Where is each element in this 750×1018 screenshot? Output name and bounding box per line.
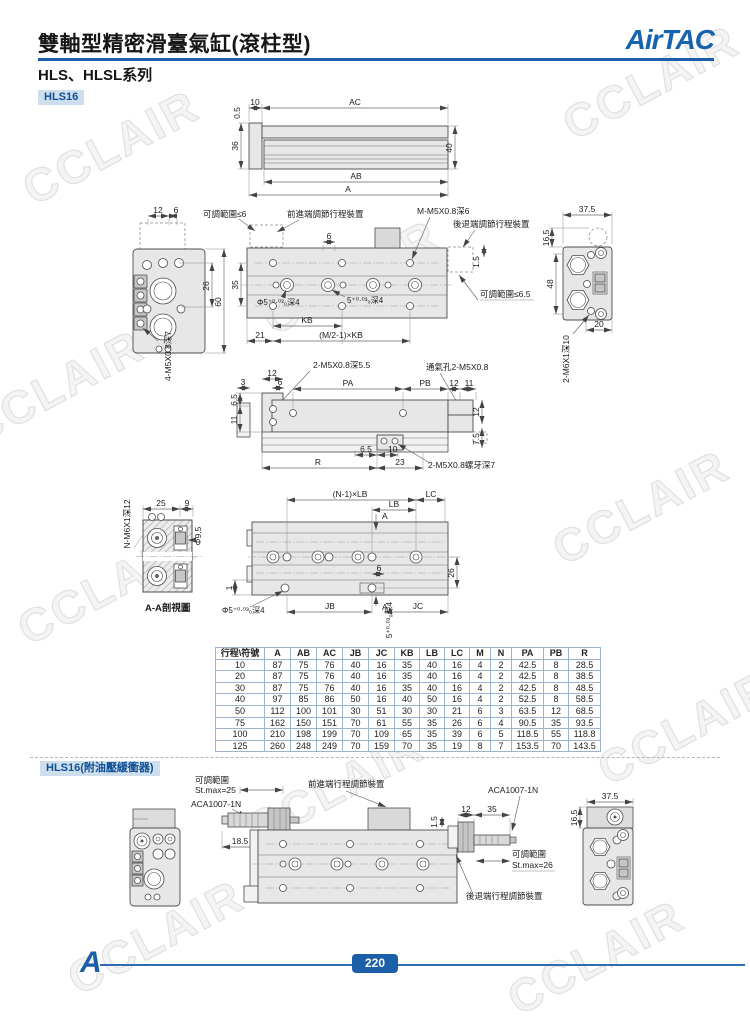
- air-port-callout: 通氣孔2-M5X0.8: [426, 362, 489, 372]
- sensor-block: [368, 808, 410, 830]
- cell: 58.5: [569, 694, 601, 706]
- cell: 87: [265, 671, 291, 683]
- cushion-nut-right: [458, 822, 474, 852]
- dim-3: 3: [241, 377, 246, 387]
- cell: 50: [420, 694, 445, 706]
- title-underline: [38, 58, 714, 61]
- cell: 4: [491, 717, 512, 729]
- cell: 76: [317, 671, 343, 683]
- ghost-adjuster-circle: [589, 228, 607, 246]
- ghost-forward-adjuster: [250, 225, 283, 247]
- dim-12: 12: [267, 368, 277, 378]
- dim-1: 1: [224, 585, 234, 590]
- dim-pa: PA: [343, 378, 354, 388]
- cell: 198: [291, 729, 317, 741]
- cell: 16: [369, 694, 395, 706]
- dim-25: 25: [156, 498, 166, 508]
- cell: 90.5: [512, 717, 544, 729]
- section-divider: [30, 757, 720, 758]
- cell: 97: [265, 694, 291, 706]
- label-aca1007-right: ACA1007-1N: [488, 785, 538, 795]
- cell: 16: [445, 682, 470, 694]
- col-header-11: PA: [512, 648, 544, 660]
- drawing-bottom-side-view: 2-M5X0.8深5.5 通氣孔2-M5X0.8 3 12 6 PA PB 12…: [228, 358, 523, 483]
- section-marker-a-top: A: [382, 511, 388, 521]
- table-row: 1252602482497015970351987153.570143.5: [216, 740, 601, 752]
- dim-6-5-left: 6.5: [229, 394, 239, 406]
- cell: 10: [216, 659, 265, 671]
- dim-n1lb: (N-1)×LB: [333, 489, 368, 499]
- drawing-plan-view: 可調範圍≤6 前進端調節行程裝置 M-M5X0.8深6 後退端調節行程裝置 1.…: [195, 205, 539, 355]
- cell: 75: [291, 659, 317, 671]
- table-row: 7516215015170615535266490.53593.5: [216, 717, 601, 729]
- model-badge-hls16: HLS16: [38, 90, 84, 105]
- cell: 2: [491, 682, 512, 694]
- cell: 151: [317, 717, 343, 729]
- col-header-0: 行程\符號: [216, 648, 265, 660]
- cell: 42.5: [512, 659, 544, 671]
- cell: 4: [470, 659, 491, 671]
- dim-16-5: 16.5: [569, 809, 579, 826]
- cell: 260: [265, 740, 291, 752]
- cell: 8: [470, 740, 491, 752]
- cell: 87: [265, 682, 291, 694]
- col-header-6: KB: [395, 648, 420, 660]
- label-aca1007-left: ACA1007-1N: [191, 799, 241, 809]
- col-header-10: N: [491, 648, 512, 660]
- dim-6: 6: [278, 377, 283, 387]
- table-row: 3087757640163540164242.5848.5: [216, 682, 601, 694]
- airtac-logo: AirTAC: [626, 24, 714, 56]
- cell: 16: [445, 671, 470, 683]
- cell: 93.5: [569, 717, 601, 729]
- dim-40: 40: [444, 143, 454, 153]
- cell: 30: [395, 705, 420, 717]
- dim-m2-1-kb: (M/2-1)×KB: [319, 330, 363, 340]
- label-forward-stroke-adjuster: 前進端行程調節裝置: [308, 779, 385, 789]
- cell: 19: [445, 740, 470, 752]
- cell: 76: [317, 659, 343, 671]
- cell: 75: [291, 682, 317, 694]
- cell: 118.5: [512, 729, 544, 741]
- cell: 16: [369, 671, 395, 683]
- table-row: 4097858650164050164252.5858.5: [216, 694, 601, 706]
- ghost-rear-adjuster: [448, 247, 473, 272]
- cell: 150: [291, 717, 317, 729]
- cell: 48.5: [569, 682, 601, 694]
- cell: 8: [544, 659, 569, 671]
- col-header-12: PB: [544, 648, 569, 660]
- cell: 153.5: [512, 740, 544, 752]
- dim-20: 20: [594, 319, 604, 329]
- cell: 35: [395, 671, 420, 683]
- cell: 65: [395, 729, 420, 741]
- cell: 16: [445, 659, 470, 671]
- label-range-26b: St.max=26: [512, 860, 553, 870]
- cell: 76: [317, 682, 343, 694]
- cell: 100: [216, 729, 265, 741]
- label-range-26a: 可調範圍: [512, 849, 546, 859]
- cell: 70: [343, 740, 369, 752]
- col-header-1: A: [265, 648, 291, 660]
- catalog-page: 雙軸型精密滑臺氣缸(滾柱型) AirTAC HLS、HLSL系列 HLS16 1…: [0, 0, 750, 1018]
- label-rear-stroke-adjuster: 後退端調節行程裝置: [453, 219, 530, 229]
- thread-callout-top: 2-M5X0.8深5.5: [313, 360, 370, 370]
- dim-6: 6: [174, 205, 179, 215]
- cell: 40: [420, 659, 445, 671]
- col-header-5: JC: [369, 648, 395, 660]
- cell: 50: [216, 705, 265, 717]
- table-header-row: 行程\符號AABACJBJCKBLBLCMNPAPBR: [216, 648, 601, 660]
- footer-rule: [100, 964, 745, 966]
- cell: 4: [470, 682, 491, 694]
- dim-35: 35: [230, 280, 240, 290]
- dim-6-5-bottom: 6.5: [360, 444, 372, 454]
- cell: 40: [343, 671, 369, 683]
- cell: 40: [343, 682, 369, 694]
- cell: 86: [317, 694, 343, 706]
- col-header-3: AC: [317, 648, 343, 660]
- cell: 20: [216, 671, 265, 683]
- drawing-side-elevation: 10 AC 0.5 36 40 AB A: [230, 96, 500, 204]
- watermark: CCLAIR: [544, 438, 739, 576]
- thread-callout: 4-M5X0.8深7: [163, 331, 173, 381]
- cell: 35: [544, 717, 569, 729]
- dim-10: 10: [250, 97, 260, 107]
- dim-37-5: 37.5: [579, 204, 596, 214]
- page-title: 雙軸型精密滑臺氣缸(滾柱型): [38, 28, 311, 58]
- cell: 8: [544, 671, 569, 683]
- cell: 6: [470, 705, 491, 717]
- table-row: 2087757640163540164242.5838.5: [216, 671, 601, 683]
- cell: 87: [265, 659, 291, 671]
- col-header-2: AB: [291, 648, 317, 660]
- dim-pb: PB: [419, 378, 431, 388]
- footer-logo-mark: A: [80, 946, 102, 980]
- counterbore-callout-1: Φ5⁺⁰·⁰³₀深4: [222, 606, 265, 615]
- cell: 39: [445, 729, 470, 741]
- cell: 210: [265, 729, 291, 741]
- cell: 35: [420, 740, 445, 752]
- cell: 30: [420, 705, 445, 717]
- dim-1-5: 1.5: [471, 256, 481, 268]
- dim-12: 12: [461, 804, 471, 814]
- dim-1-5: 1.5: [429, 816, 439, 828]
- dim-16-5: 16.5: [541, 229, 551, 246]
- cell: 118.8: [569, 729, 601, 741]
- dim-lc: LC: [426, 489, 437, 499]
- table-row: 5011210010130513030216363.51268.5: [216, 705, 601, 717]
- dim-21: 21: [255, 330, 265, 340]
- dim-23: 23: [395, 457, 405, 467]
- cell: 6: [470, 729, 491, 741]
- cell: 249: [317, 740, 343, 752]
- cell: 42.5: [512, 682, 544, 694]
- cell: 2: [491, 671, 512, 683]
- cell: 40: [343, 659, 369, 671]
- cell: 16: [369, 659, 395, 671]
- col-header-4: JB: [343, 648, 369, 660]
- dim-a: A: [345, 184, 351, 194]
- label-forward-stroke-adjuster: 前進端調節行程裝置: [287, 209, 364, 219]
- dim-jb: JB: [325, 601, 335, 611]
- cell: 162: [265, 717, 291, 729]
- cell: 16: [445, 694, 470, 706]
- cell: 42.5: [512, 671, 544, 683]
- cell: 199: [317, 729, 343, 741]
- cell: 35: [420, 729, 445, 741]
- table-row: 1087757640163540164242.5828.5: [216, 659, 601, 671]
- cell: 28.5: [569, 659, 601, 671]
- cell: 40: [420, 682, 445, 694]
- cell: 38.5: [569, 671, 601, 683]
- dim-r: R: [315, 457, 321, 467]
- label-range-25b: St.max=25: [195, 785, 236, 795]
- cell: 26: [445, 717, 470, 729]
- cell: 51: [369, 705, 395, 717]
- cell: 55: [395, 717, 420, 729]
- thread-callout-bottom: 2-M5X0.8螺牙深7: [428, 460, 495, 470]
- drawing-cushion-right-end-view: 37.5 16.5: [575, 793, 710, 923]
- dim-9: 9: [185, 498, 190, 508]
- dim-35: 35: [487, 804, 497, 814]
- dim-11: 11: [465, 378, 474, 388]
- cell: 125: [216, 740, 265, 752]
- lower-rail: [262, 432, 448, 452]
- ghost-adjuster: [140, 223, 185, 249]
- drawing-right-end-view: 37.5 16.5 48 20 2-M6X1深10: [545, 198, 670, 390]
- dim-12: 12: [153, 205, 163, 215]
- cell: 8: [544, 682, 569, 694]
- cell: 35: [395, 659, 420, 671]
- col-header-7: LB: [420, 648, 445, 660]
- dim-10: 10: [388, 444, 398, 454]
- cell: 70: [343, 729, 369, 741]
- cell: 109: [369, 729, 395, 741]
- label-range-25a: 可調範圍: [195, 775, 229, 785]
- table-row: 1002101981997010965353965118.555118.8: [216, 729, 601, 741]
- cell: 35: [420, 717, 445, 729]
- dim-9-5: Φ9.5: [193, 526, 203, 545]
- label-rear-stroke-adjuster: 後退端行程調節裝置: [466, 891, 543, 901]
- cell: 70: [395, 740, 420, 752]
- cell: 2: [491, 659, 512, 671]
- cell: 75: [216, 717, 265, 729]
- series-subtitle: HLS、HLSL系列: [38, 64, 152, 85]
- counterbore-callout-2: 5⁺⁰·⁰³₀深4: [347, 296, 384, 305]
- cell: 8: [544, 694, 569, 706]
- cell: 50: [343, 694, 369, 706]
- dim-lb: LB: [389, 499, 400, 509]
- table-body: 1087757640163540164242.5828.520877576401…: [216, 659, 601, 752]
- cell: 248: [291, 740, 317, 752]
- dimension-table: 行程\符號AABACJBJCKBLBLCMNPAPBR 108775764016…: [215, 647, 601, 752]
- cell: 3: [491, 705, 512, 717]
- model-badge-hls16-cushion: HLS16(附油壓緩衝器): [40, 761, 160, 776]
- slide-table: [262, 126, 448, 138]
- upper-slab: [272, 400, 448, 432]
- cell: 7: [491, 740, 512, 752]
- section-caption: A-A剖視圖: [145, 602, 190, 614]
- page-number-badge: 220: [352, 954, 398, 973]
- cell: 52.5: [512, 694, 544, 706]
- cylinder-body: [264, 140, 448, 169]
- cell: 12: [544, 705, 569, 717]
- cell: 40: [395, 694, 420, 706]
- dim-36: 36: [230, 141, 240, 151]
- dim-jc: JC: [413, 601, 423, 611]
- cell: 16: [369, 682, 395, 694]
- cell: 4: [470, 671, 491, 683]
- cell: 68.5: [569, 705, 601, 717]
- thread-callout: 2-M6X1深10: [561, 335, 571, 383]
- drawing-hole-pattern-view: (N-1)×LB LC LB A 26 6 1 Φ5⁺⁰·⁰³₀深4 A 5⁺⁰…: [220, 486, 522, 640]
- cell: 2: [491, 694, 512, 706]
- cell: 21: [445, 705, 470, 717]
- col-header-9: M: [470, 648, 491, 660]
- cell: 35: [395, 682, 420, 694]
- col-header-8: LC: [445, 648, 470, 660]
- cell: 61: [369, 717, 395, 729]
- counterbore-callout-2: 5⁺⁰·⁰³₀深4: [385, 601, 394, 638]
- cushion-nut-left: [268, 808, 290, 830]
- sensor-block: [375, 228, 400, 248]
- counterbore-callout-1: Φ5⁺⁰·⁰³₀深4: [257, 298, 300, 307]
- cell: 75: [291, 671, 317, 683]
- cell: 5: [491, 729, 512, 741]
- watermark: CCLAIR: [589, 658, 750, 796]
- cell: 159: [369, 740, 395, 752]
- dim-6: 6: [377, 563, 382, 573]
- dim-12b: 12: [449, 378, 459, 388]
- cell: 70: [343, 717, 369, 729]
- dim-0-5: 0.5: [232, 107, 242, 119]
- cell: 55: [544, 729, 569, 741]
- cell: 40: [420, 671, 445, 683]
- dim-ac: AC: [349, 97, 361, 107]
- label-m-thread: M-M5X0.8深6: [417, 206, 470, 216]
- cell: 4: [470, 694, 491, 706]
- label-adjust-range-6-5: 可調範圍≤6.5: [480, 289, 531, 299]
- cell: 101: [317, 705, 343, 717]
- dim-12-right: 12: [471, 407, 481, 417]
- dim-26: 26: [446, 568, 456, 578]
- dim-ab: AB: [350, 171, 362, 181]
- col-header-13: R: [569, 648, 601, 660]
- cell: 112: [265, 705, 291, 717]
- thread-callout: N-M6X1深12: [122, 499, 132, 548]
- cell: 143.5: [569, 740, 601, 752]
- label-adjust-range-6: 可調範圍≤6: [203, 209, 247, 219]
- dim-7-5: 7.5: [471, 433, 481, 445]
- cell: 40: [216, 694, 265, 706]
- end-plate: [249, 123, 262, 169]
- dim-11-left: 11: [229, 415, 239, 424]
- dim-18-5: 18.5: [232, 836, 249, 846]
- dim-48: 48: [545, 279, 555, 289]
- cell: 70: [544, 740, 569, 752]
- cell: 85: [291, 694, 317, 706]
- dim-37-5: 37.5: [602, 791, 619, 801]
- cell: 30: [216, 682, 265, 694]
- cell: 63.5: [512, 705, 544, 717]
- cell: 6: [470, 717, 491, 729]
- dim-6: 6: [327, 231, 332, 241]
- dim-kb: KB: [301, 315, 313, 325]
- drawing-cushion-main-view: 可調範圍 St.max=25 ACA1007-1N 前進端行程調節裝置 18.5: [188, 773, 573, 925]
- cell: 30: [343, 705, 369, 717]
- drawing-cushion-left-end-view: [118, 797, 196, 937]
- cell: 100: [291, 705, 317, 717]
